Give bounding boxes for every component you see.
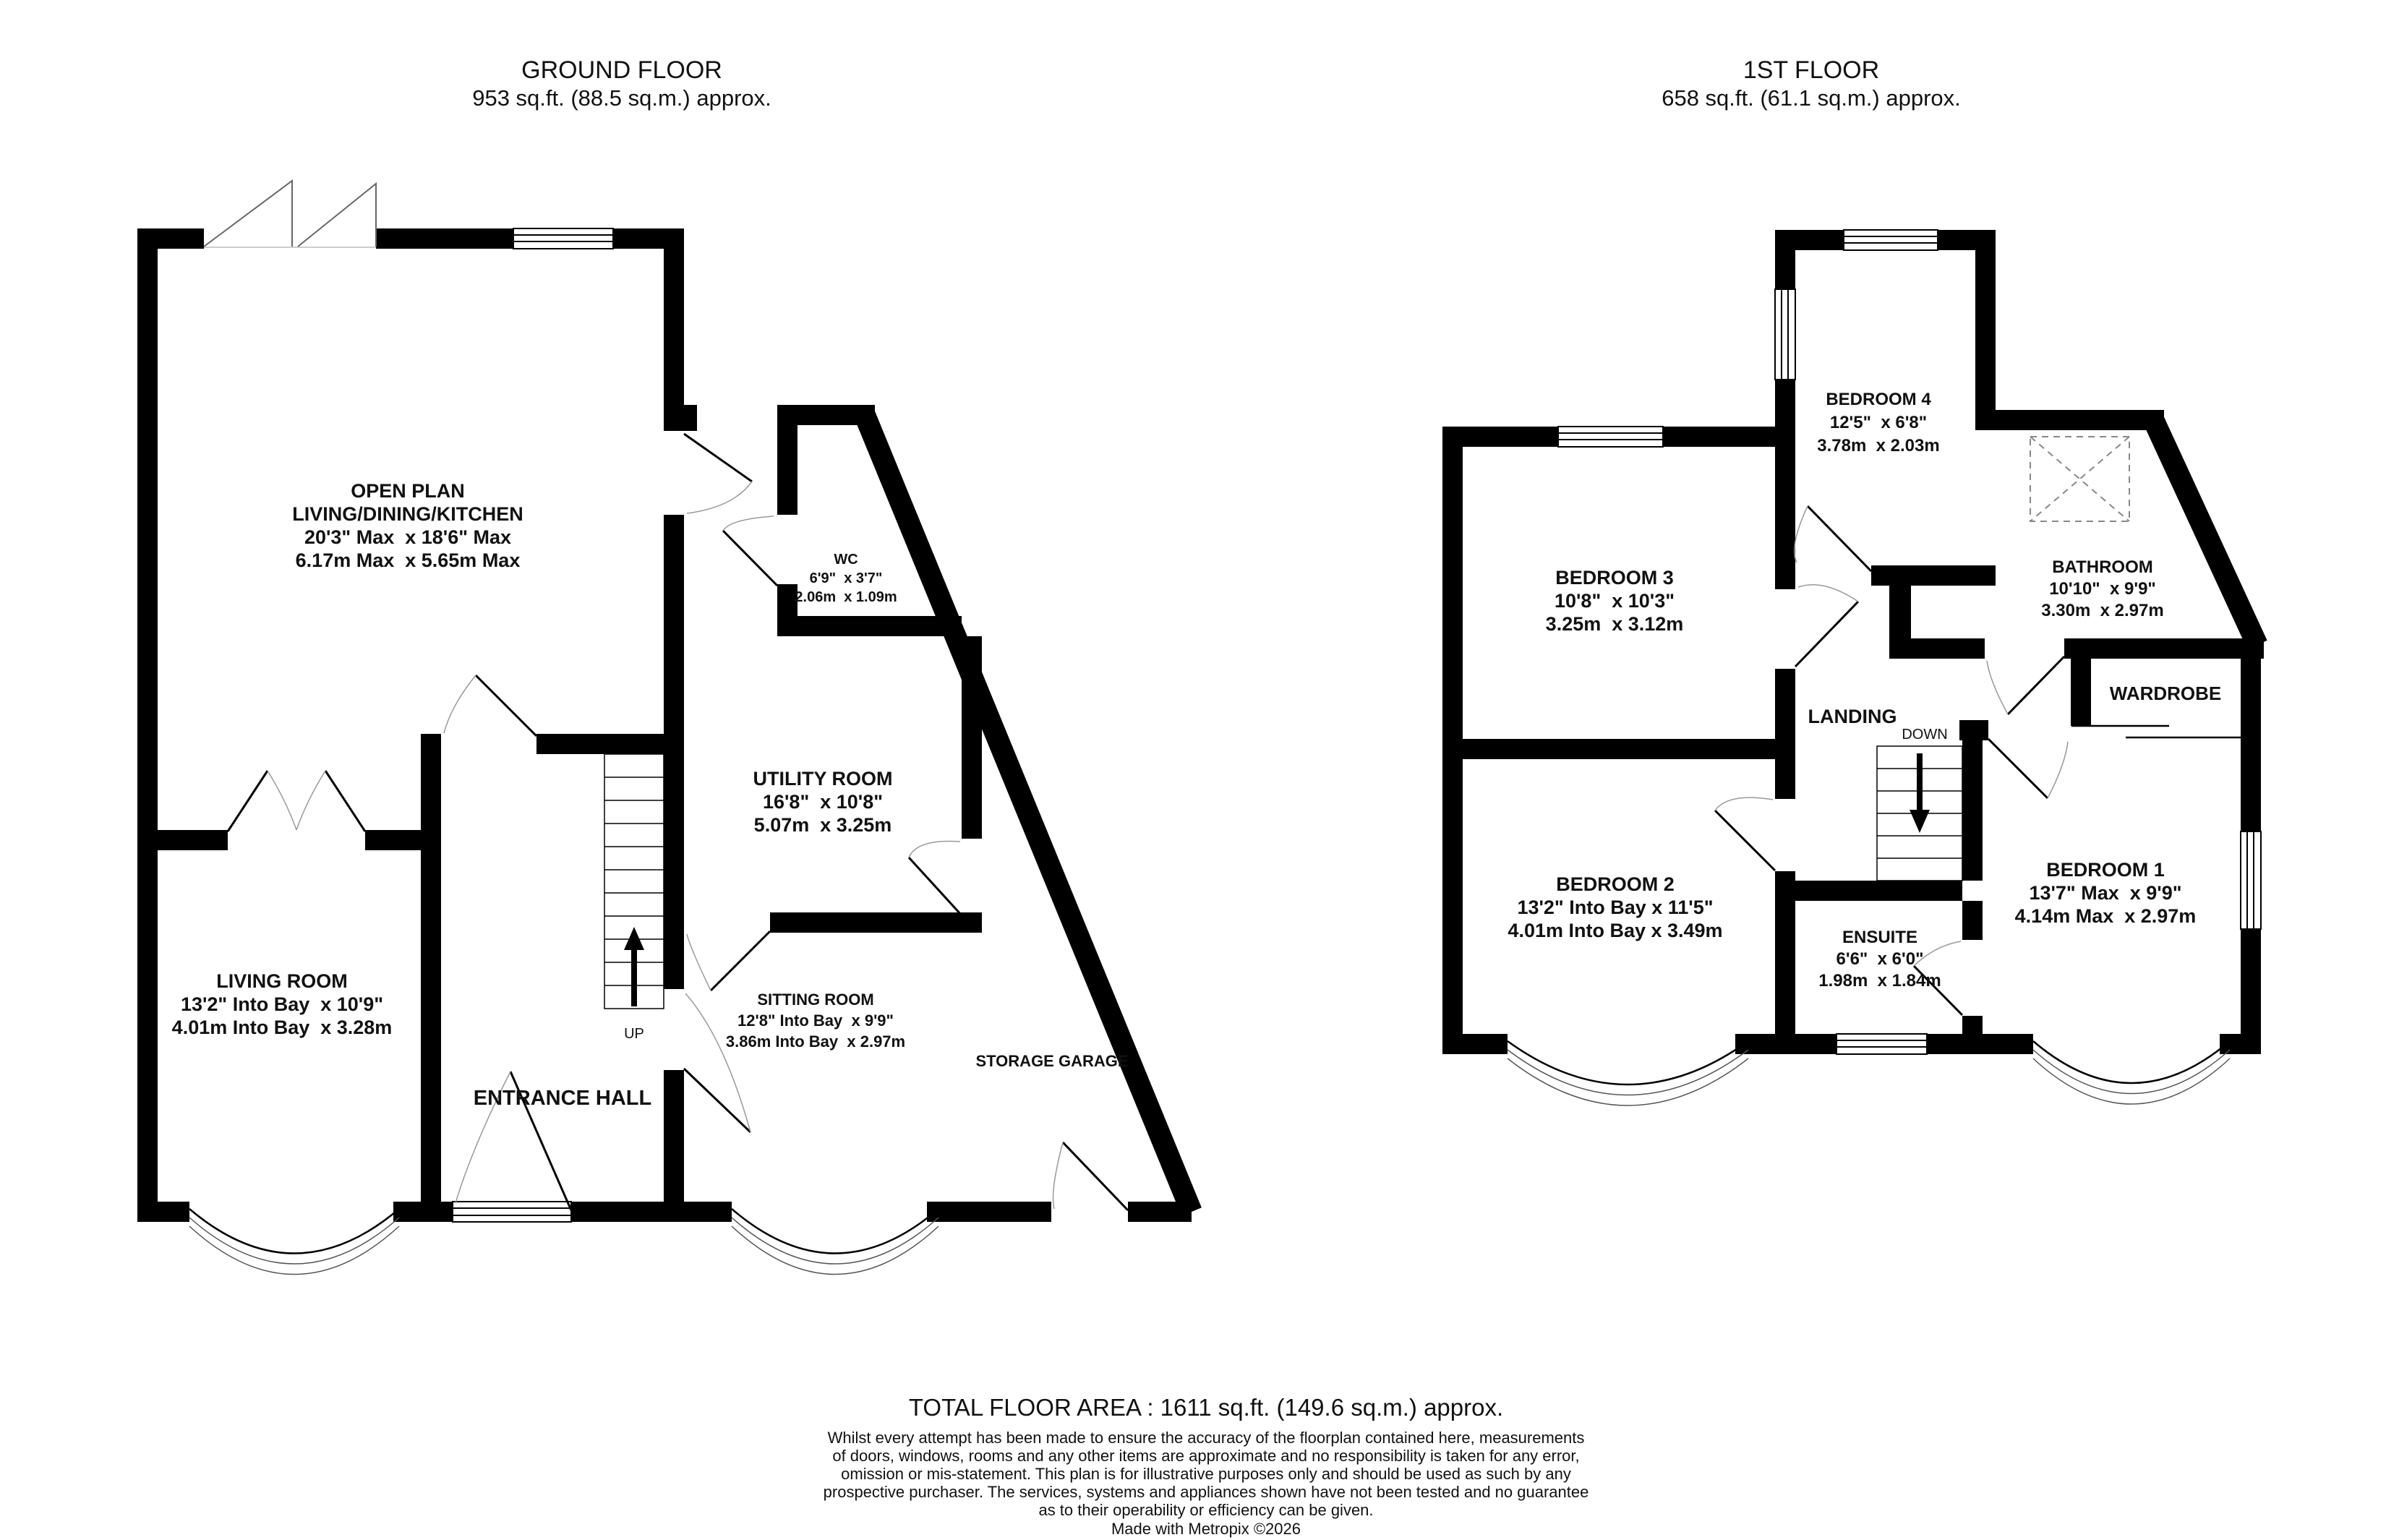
- room-label-landing: LANDING: [1808, 706, 1897, 727]
- window: [2241, 831, 2261, 929]
- door: [684, 434, 752, 513]
- door: [1988, 739, 2068, 798]
- wall: [770, 912, 982, 933]
- wall: [664, 515, 684, 734]
- wall: [664, 1070, 684, 1222]
- wall: [1975, 230, 1996, 416]
- wall: [2241, 638, 2261, 831]
- room-label-bedroom4-name: BEDROOM 4: [1826, 390, 1931, 409]
- room-label-living-metric: 4.01m Into Bay x 3.28m: [172, 1017, 393, 1038]
- door: [1715, 797, 1775, 870]
- door: [1795, 585, 1858, 667]
- wall: [1795, 1034, 1836, 1054]
- room-label-wc-imperial: 6'9" x 3'7": [810, 570, 883, 586]
- ground-floor-area: 953 sq.ft. (88.5 sq.m.) approx.: [472, 85, 771, 111]
- living-room-bay-window: [189, 1209, 399, 1275]
- garage-door: [1053, 1142, 1129, 1210]
- bedroom1-bay-window: [2033, 1041, 2230, 1104]
- room-label-bedroom1-name: BEDROOM 1: [2046, 859, 2165, 881]
- wall: [376, 228, 513, 249]
- wall: [1779, 881, 1962, 901]
- room-label-bedroom2-metric: 4.01m Into Bay x 3.49m: [1508, 920, 1722, 941]
- room-label-bedroom1-metric: 4.14m Max x 2.97m: [2015, 905, 2197, 927]
- window: [1775, 289, 1795, 380]
- wall: [1927, 1034, 1983, 1054]
- wall: [2071, 659, 2091, 726]
- wall: [1975, 410, 2164, 430]
- staircase-down: [1877, 746, 1962, 881]
- ground-floor-title: GROUND FLOOR: [521, 56, 722, 84]
- ground-floor-windows: [453, 228, 613, 1222]
- room-label-open-plan-imperial: 20'3" Max x 18'6" Max: [304, 526, 511, 548]
- room-label-bedroom3-metric: 3.25m x 3.12m: [1546, 613, 1684, 635]
- disclaimer-line: of doors, windows, rooms and any other i…: [832, 1447, 1579, 1465]
- door: [1987, 656, 2064, 714]
- first-floor-area: 658 sq.ft. (61.1 sq.m.) approx.: [1662, 85, 1961, 111]
- floorplan-canvas: GROUND FLOOR 953 sq.ft. (88.5 sq.m.) app…: [0, 0, 2386, 1540]
- room-label-bedroom3-imperial: 10'8" x 10'3": [1555, 590, 1675, 612]
- window: [1844, 230, 1938, 250]
- room-label-bathroom-imperial: 10'10" x 9'9": [2049, 579, 2156, 599]
- wall: [421, 734, 441, 1222]
- ground-floor-walls: [137, 228, 1192, 1222]
- zigzag-symbol: [204, 181, 376, 247]
- window: [1836, 1034, 1927, 1054]
- stairs-up-label: UP: [624, 1026, 644, 1042]
- first-floor-title: 1ST FLOOR: [1743, 56, 1879, 84]
- disclaimer-line: prospective purchaser. The services, sys…: [824, 1483, 1589, 1501]
- room-label-bathroom-name: BATHROOM: [2052, 557, 2153, 577]
- room-label-utility-metric: 5.07m x 3.25m: [754, 814, 892, 836]
- wall: [1889, 586, 1911, 659]
- wall: [777, 425, 798, 515]
- wall: [664, 754, 684, 989]
- bedroom2-bay-window: [1508, 1041, 1748, 1105]
- room-label-storage-garage: STORAGE GARAGE: [975, 1052, 1128, 1070]
- wall: [1983, 1034, 2033, 1054]
- wall: [1962, 740, 1983, 881]
- metropix-credit: Made with Metropix ©2026: [1111, 1520, 1301, 1538]
- front-door-threshold: [453, 1202, 571, 1222]
- stairs-down-label: DOWN: [1902, 727, 1947, 743]
- room-label-open-plan-name: OPEN PLAN: [351, 480, 465, 502]
- wall: [421, 1202, 453, 1222]
- wall: [1775, 447, 1795, 589]
- door: [1795, 506, 1871, 571]
- total-floor-area: TOTAL FLOOR AREA : 1611 sq.ft. (149.6 sq…: [909, 1394, 1503, 1421]
- bathroom-diagonal-wall: [2153, 419, 2257, 645]
- disclaimer-line: as to their operability or efficiency ca…: [1038, 1501, 1373, 1519]
- room-label-bedroom1-imperial: 13'7" Max x 9'9": [2029, 882, 2181, 904]
- room-label-wardrobe: WARDROBE: [2110, 683, 2222, 704]
- room-label-utility-imperial: 16'8" x 10'8": [763, 791, 883, 813]
- room-label-sitting-metric: 3.86m Into Bay x 2.97m: [726, 1032, 905, 1051]
- room-label-ensuite-imperial: 6'6" x 6'0": [1836, 949, 1924, 969]
- room-label-bathroom-metric: 3.30m x 2.97m: [2041, 601, 2163, 620]
- window: [1558, 427, 1663, 447]
- footer: TOTAL FLOOR AREA : 1611 sq.ft. (149.6 sq…: [824, 1394, 1589, 1538]
- wall: [1442, 1034, 1508, 1054]
- wall: [1775, 380, 1795, 447]
- room-label-bedroom3-name: BEDROOM 3: [1555, 567, 1674, 589]
- window: [513, 228, 613, 249]
- wall: [536, 734, 684, 754]
- wall: [137, 1202, 189, 1222]
- room-label-open-plan-name2: LIVING/DINING/KITCHEN: [292, 503, 523, 525]
- door: [723, 516, 777, 586]
- wall: [137, 228, 158, 1222]
- wall: [1442, 739, 1795, 759]
- wall: [1910, 638, 1985, 659]
- room-label-bedroom4-imperial: 12'5" x 6'8": [1830, 413, 1927, 432]
- room-label-bedroom4-metric: 3.78m x 2.03m: [1817, 436, 1939, 455]
- wall: [1663, 427, 1775, 447]
- door: [909, 841, 962, 915]
- wall: [1775, 230, 1844, 250]
- wall: [684, 1202, 732, 1222]
- room-label-bedroom2-imperial: 13'2" Into Bay x 11'5": [1517, 897, 1713, 918]
- ground-floor-plan: GROUND FLOOR 953 sq.ft. (88.5 sq.m.) app…: [137, 56, 1192, 1275]
- door: [687, 931, 770, 991]
- open-plan-top-opening: [204, 181, 376, 247]
- disclaimer-line: Whilst every attempt has been made to en…: [828, 1429, 1585, 1447]
- first-floor-plan: 1ST FLOOR 658 sq.ft. (61.1 sq.m.) approx…: [1442, 56, 2264, 1105]
- wall: [137, 830, 228, 850]
- room-label-open-plan-metric: 6.17m Max x 5.65m Max: [296, 549, 521, 571]
- room-label-wc-name: WC: [834, 552, 858, 568]
- room-label-living-name: LIVING ROOM: [216, 970, 348, 992]
- wall: [365, 830, 441, 850]
- sitting-room-bay-window: [732, 1209, 938, 1275]
- wall: [2064, 638, 2264, 659]
- wall: [1959, 720, 1988, 740]
- room-label-ensuite-metric: 1.98m x 1.84m: [1818, 971, 1941, 991]
- wall: [1775, 759, 1795, 799]
- wall: [982, 1202, 1051, 1222]
- wardrobe-sliding-doors: [2071, 726, 2241, 737]
- room-label-living-imperial: 13'2" Into Bay x 10'9": [181, 993, 383, 1015]
- wall: [1871, 565, 1996, 586]
- room-label-ensuite-name: ENSUITE: [1842, 928, 1917, 947]
- garage-diagonal-wall: [865, 415, 1192, 1212]
- door: [444, 675, 536, 736]
- double-door: [228, 771, 365, 831]
- wall: [664, 228, 684, 405]
- skylight-symbol: [2030, 437, 2129, 521]
- wall: [1442, 427, 1558, 447]
- room-label-entrance-hall: ENTRANCE HALL: [474, 1087, 652, 1110]
- wall: [1962, 901, 1983, 940]
- room-label-bedroom2-name: BEDROOM 2: [1556, 873, 1675, 895]
- room-label-sitting-imperial: 12'8" Into Bay x 9'9": [737, 1011, 894, 1030]
- room-label-utility-name: UTILITY ROOM: [753, 768, 893, 790]
- wall: [777, 616, 962, 636]
- room-label-wc-metric: 2.06m x 1.09m: [795, 589, 897, 605]
- wall: [664, 405, 697, 431]
- disclaimer-line: omission or mis-statement. This plan is …: [841, 1465, 1571, 1483]
- staircase-up: [604, 754, 664, 1009]
- room-label-sitting-name: SITTING ROOM: [757, 991, 873, 1009]
- floorplan-drawing: GROUND FLOOR 953 sq.ft. (88.5 sq.m.) app…: [0, 0, 2386, 1540]
